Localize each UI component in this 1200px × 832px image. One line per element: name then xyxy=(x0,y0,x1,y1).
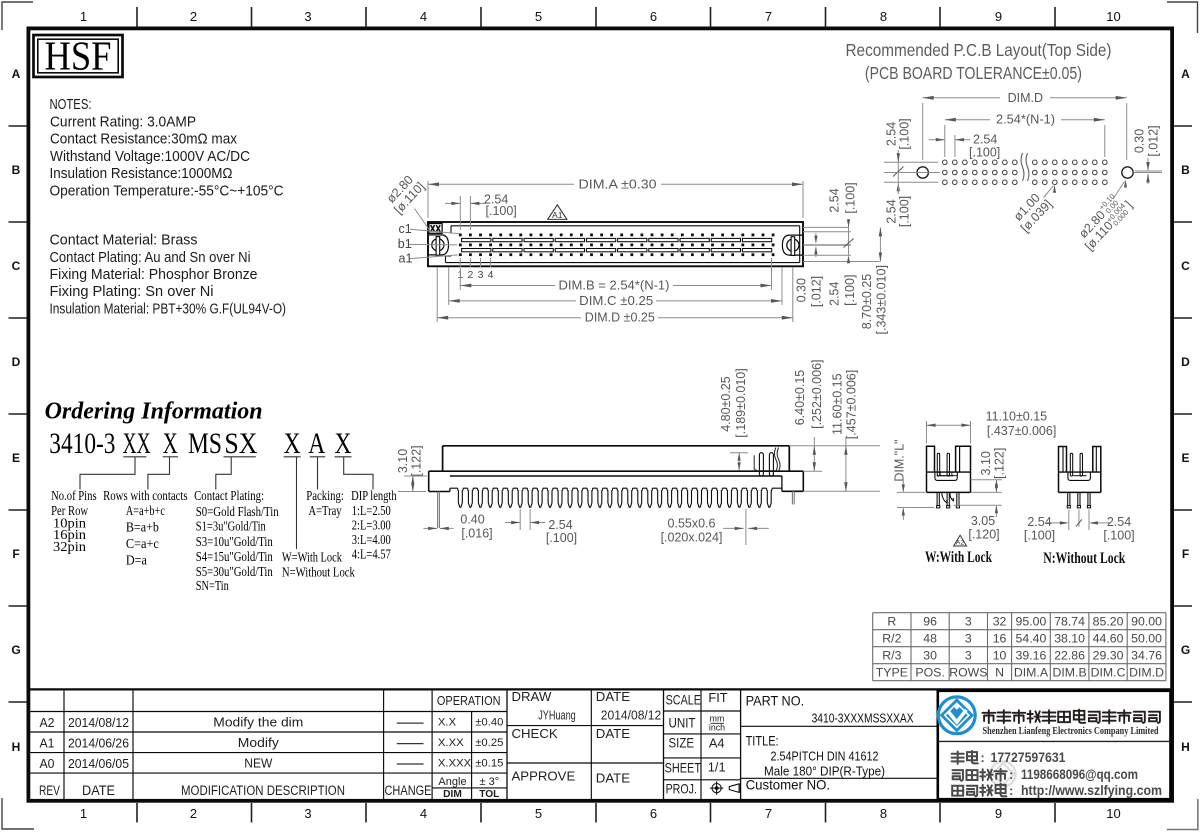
svg-text:54.40: 54.40 xyxy=(1016,631,1047,645)
svg-text:X: X xyxy=(284,427,301,460)
svg-text:SHEET: SHEET xyxy=(665,761,702,776)
svg-text:29.30: 29.30 xyxy=(1093,648,1124,662)
svg-text:7: 7 xyxy=(765,9,772,24)
svg-text:8: 8 xyxy=(880,806,887,821)
svg-text:PART NO.: PART NO. xyxy=(746,694,805,709)
svg-text:Customer NO.: Customer NO. xyxy=(746,778,831,793)
svg-text:H: H xyxy=(1181,740,1190,754)
svg-text:2014/06/05: 2014/06/05 xyxy=(68,756,129,771)
svg-text:[.252±0.006]: [.252±0.006] xyxy=(810,359,824,428)
svg-text:90.00: 90.00 xyxy=(1131,614,1162,628)
svg-text:6.40±0.15: 6.40±0.15 xyxy=(793,370,807,426)
svg-text:R/3: R/3 xyxy=(882,648,901,662)
svg-text:Shenzhen Lianfeng Electronics: Shenzhen Lianfeng Electronics Company Li… xyxy=(983,726,1159,737)
svg-text:X: X xyxy=(163,427,178,460)
svg-text:E: E xyxy=(12,451,20,465)
svg-text:[.122]: [.122] xyxy=(992,448,1006,479)
svg-text:B=a+b: B=a+b xyxy=(126,520,159,535)
svg-text:2014/06/26: 2014/06/26 xyxy=(68,736,129,751)
svg-text:0.40: 0.40 xyxy=(460,512,484,526)
svg-text:B: B xyxy=(1181,163,1190,177)
svg-text:2.54: 2.54 xyxy=(828,281,842,305)
svg-text:Insulation Resistance:1000MΩ: Insulation Resistance:1000MΩ xyxy=(50,165,233,182)
svg-text:4: 4 xyxy=(420,9,427,24)
svg-text:[.437±0.006]: [.437±0.006] xyxy=(987,424,1056,438)
svg-text:X.X: X.X xyxy=(438,716,457,728)
svg-text:2014/08/12: 2014/08/12 xyxy=(68,715,129,730)
svg-text:Modify the dim: Modify the dim xyxy=(213,715,303,730)
svg-text:Modify: Modify xyxy=(238,735,280,750)
svg-text:32pin: 32pin xyxy=(53,539,86,554)
svg-text:±0.15: ±0.15 xyxy=(475,757,503,769)
svg-text:TYPE: TYPE xyxy=(876,665,908,679)
svg-text:G: G xyxy=(1181,643,1190,657)
svg-text:C: C xyxy=(1181,259,1190,273)
svg-text:2: 2 xyxy=(190,806,197,821)
svg-text:4: 4 xyxy=(420,806,427,821)
svg-text:DIM.D ±0.25: DIM.D ±0.25 xyxy=(585,311,655,325)
svg-text:10: 10 xyxy=(993,648,1007,662)
svg-text:Packing:: Packing: xyxy=(306,488,344,503)
svg-text:5: 5 xyxy=(535,806,542,821)
svg-text:Rows with contacts: Rows with contacts xyxy=(103,488,188,503)
svg-text:DIM."L": DIM."L" xyxy=(892,439,906,481)
svg-text:DIM.C ±0.25: DIM.C ±0.25 xyxy=(579,294,653,308)
svg-text:A1: A1 xyxy=(552,210,563,220)
svg-text:[.100]: [.100] xyxy=(486,204,517,218)
svg-text:2:L=3.00: 2:L=3.00 xyxy=(352,517,391,532)
svg-text:DIM.D: DIM.D xyxy=(1129,665,1164,679)
svg-text:[.100]: [.100] xyxy=(843,275,857,306)
svg-text:R/2: R/2 xyxy=(882,631,901,645)
svg-text:[.100]: [.100] xyxy=(969,146,1000,160)
svg-text:FIT: FIT xyxy=(708,690,727,705)
svg-text:SIZE: SIZE xyxy=(669,736,695,751)
svg-text:78.74: 78.74 xyxy=(1054,614,1085,628)
svg-text:Contact Plating:: Contact Plating: xyxy=(194,488,264,503)
svg-text:PROJ.: PROJ. xyxy=(666,781,697,796)
svg-text:A1: A1 xyxy=(40,736,55,751)
svg-text:D=a: D=a xyxy=(126,553,147,568)
svg-text:3: 3 xyxy=(965,648,972,662)
svg-text:c1: c1 xyxy=(399,222,412,236)
svg-text:UNIT: UNIT xyxy=(669,716,696,731)
svg-text:3410-3XXXMSSXXAX: 3410-3XXXMSSXXAX xyxy=(812,711,914,726)
svg-text:3.10: 3.10 xyxy=(396,449,410,473)
svg-text:8: 8 xyxy=(880,9,887,24)
svg-text:inch: inch xyxy=(709,723,725,733)
svg-text:±0.40: ±0.40 xyxy=(475,716,503,728)
svg-text:A: A xyxy=(308,427,325,460)
svg-text:[.016]: [.016] xyxy=(461,526,492,540)
svg-text:DATE: DATE xyxy=(596,771,630,786)
svg-text:CHANGE: CHANGE xyxy=(385,783,432,798)
svg-text:TOL: TOL xyxy=(479,789,499,800)
svg-text:0.30: 0.30 xyxy=(794,278,808,302)
svg-text:Operation Temperature:-55°C~+: Operation Temperature:-55°C~+105°C xyxy=(50,183,284,200)
svg-text:Insulation Material: PBT+30%: Insulation Material: PBT+30% G.F(UL94V-O… xyxy=(50,300,287,317)
svg-text:32: 32 xyxy=(993,614,1007,628)
svg-text:39.16: 39.16 xyxy=(1016,648,1047,662)
svg-text:S0=Gold Flash/Tin: S0=Gold Flash/Tin xyxy=(196,504,279,519)
svg-text:C: C xyxy=(12,259,21,273)
svg-text:9: 9 xyxy=(995,806,1002,821)
svg-text:[.120]: [.120] xyxy=(968,528,999,542)
svg-text:Fixing Plating: Sn over Ni: Fixing Plating: Sn over Ni xyxy=(50,283,214,300)
svg-text:2: 2 xyxy=(467,269,473,281)
svg-text:0.55x0.6: 0.55x0.6 xyxy=(668,516,716,530)
svg-text:Contact Resistance:30mΩ max: Contact Resistance:30mΩ max xyxy=(50,130,237,147)
svg-text:DIM.B = 2.54*(N-1): DIM.B = 2.54*(N-1) xyxy=(559,278,670,292)
svg-text:SX: SX xyxy=(224,427,257,460)
svg-text:F: F xyxy=(1182,547,1189,561)
svg-text:[.100]: [.100] xyxy=(546,531,577,545)
svg-text:[.100]: [.100] xyxy=(1024,528,1055,542)
svg-text:[.100]: [.100] xyxy=(1103,528,1134,542)
svg-text:A2: A2 xyxy=(956,540,965,547)
svg-text:W:With Lock: W:With Lock xyxy=(925,549,992,566)
svg-text:3.10: 3.10 xyxy=(979,451,993,475)
svg-text:10: 10 xyxy=(1106,9,1120,24)
svg-text:3: 3 xyxy=(478,269,484,281)
svg-text:2.54: 2.54 xyxy=(1027,515,1051,529)
svg-text:9: 9 xyxy=(995,9,1002,24)
svg-text:1:L=2.50: 1:L=2.50 xyxy=(352,503,391,518)
svg-text:S3=10u"Gold/Tin: S3=10u"Gold/Tin xyxy=(196,534,273,549)
svg-text:MS: MS xyxy=(188,427,222,460)
svg-text:[.100]: [.100] xyxy=(898,118,912,149)
svg-text:48: 48 xyxy=(923,631,937,645)
svg-text:DIM: DIM xyxy=(443,789,462,800)
svg-text:22.86: 22.86 xyxy=(1054,648,1085,662)
svg-text:Ordering Information: Ordering Information xyxy=(45,399,263,425)
svg-text:44.60: 44.60 xyxy=(1093,631,1124,645)
svg-text:G: G xyxy=(11,643,20,657)
svg-text:[.189±0.010]: [.189±0.010] xyxy=(734,368,748,437)
svg-text:50.00: 50.00 xyxy=(1131,631,1162,645)
svg-text:2.54: 2.54 xyxy=(973,133,997,147)
svg-text:2.54: 2.54 xyxy=(1107,515,1131,529)
svg-text:4.80±0.25: 4.80±0.25 xyxy=(719,376,733,432)
svg-text:REV: REV xyxy=(39,783,60,798)
svg-text:SCALE: SCALE xyxy=(666,693,701,708)
svg-text:A0: A0 xyxy=(40,756,55,771)
svg-text:[.012]: [.012] xyxy=(1147,125,1161,156)
svg-text:85.20: 85.20 xyxy=(1093,614,1124,628)
svg-text:3410-3: 3410-3 xyxy=(49,427,115,460)
svg-text:ROWS: ROWS xyxy=(949,665,987,679)
svg-text:JYHuang: JYHuang xyxy=(538,707,576,722)
svg-text:A=a+b+c: A=a+b+c xyxy=(126,503,165,518)
svg-text:DIM.C: DIM.C xyxy=(1091,665,1126,679)
svg-text:No.of Pins: No.of Pins xyxy=(51,488,97,503)
svg-text:A: A xyxy=(1181,67,1190,81)
svg-text:N:Without Lock: N:Without Lock xyxy=(1043,550,1125,567)
svg-text:7: 7 xyxy=(765,806,772,821)
svg-text:Angle: Angle xyxy=(438,776,466,788)
svg-text:3: 3 xyxy=(304,9,311,24)
svg-text:HSF: HSF xyxy=(45,33,112,79)
svg-text:X.XXX: X.XXX xyxy=(438,757,472,769)
svg-text:16: 16 xyxy=(993,631,1007,645)
svg-text:B: B xyxy=(12,163,21,177)
svg-text:5: 5 xyxy=(535,9,542,24)
svg-text:D: D xyxy=(12,355,21,369)
svg-text:NEW: NEW xyxy=(244,756,273,771)
svg-text:[.100]: [.100] xyxy=(843,182,857,213)
svg-text:2.54: 2.54 xyxy=(827,188,841,212)
svg-text::: : xyxy=(1009,783,1013,798)
svg-text:11.10±0.15: 11.10±0.15 xyxy=(986,409,1048,423)
svg-text:R: R xyxy=(887,614,896,628)
svg-text:2.54: 2.54 xyxy=(885,199,899,223)
svg-text:4:L=4.57: 4:L=4.57 xyxy=(352,546,391,561)
svg-text:3.05: 3.05 xyxy=(971,514,995,528)
svg-text:Male 180° DIP(R-Type): Male 180° DIP(R-Type) xyxy=(764,764,885,779)
svg-text:APPROVE: APPROVE xyxy=(512,768,576,783)
svg-text:2.54: 2.54 xyxy=(885,122,899,146)
svg-text:[.100]: [.100] xyxy=(898,196,912,227)
svg-text:[.020x.024]: [.020x.024] xyxy=(661,530,723,544)
svg-text:S4=15u"Gold/Tin: S4=15u"Gold/Tin xyxy=(196,549,273,564)
svg-text:TITLE:: TITLE: xyxy=(746,734,779,749)
svg-text:C=a+c: C=a+c xyxy=(126,536,159,551)
svg-text:DATE: DATE xyxy=(596,689,630,704)
svg-text::: : xyxy=(1009,767,1013,782)
svg-text:3:L=4.00: 3:L=4.00 xyxy=(352,532,391,547)
svg-text:N: N xyxy=(995,665,1004,679)
svg-text:± 3°: ± 3° xyxy=(479,776,499,788)
svg-text:96: 96 xyxy=(923,614,937,628)
svg-text:A4: A4 xyxy=(709,736,725,751)
svg-text:Fixing Material: Phosphor B: Fixing Material: Phosphor Bronze xyxy=(50,266,258,283)
svg-text:NOTES:: NOTES: xyxy=(50,96,92,113)
svg-text:DIM.B: DIM.B xyxy=(1053,665,1087,679)
svg-text:1198668096@qq.com: 1198668096@qq.com xyxy=(1021,767,1138,783)
svg-text:2.54*(N-1): 2.54*(N-1) xyxy=(996,113,1055,127)
svg-text:CHECK: CHECK xyxy=(512,726,558,741)
svg-text:30: 30 xyxy=(923,648,937,662)
svg-text:1/1: 1/1 xyxy=(708,759,726,774)
svg-text:3: 3 xyxy=(965,631,972,645)
svg-text:http://www.szlfying.com: http://www.szlfying.com xyxy=(1021,783,1162,799)
svg-text:DIM.A: DIM.A xyxy=(1014,665,1049,679)
svg-text:34.76: 34.76 xyxy=(1131,648,1162,662)
svg-text:0.30: 0.30 xyxy=(1133,129,1147,153)
svg-text:Contact Material: Brass: Contact Material: Brass xyxy=(50,231,198,248)
svg-text:4: 4 xyxy=(488,269,494,281)
svg-text:DIM.D: DIM.D xyxy=(1008,91,1043,105)
svg-text:[.343±0.010]: [.343±0.010] xyxy=(874,265,888,334)
svg-text:S1=3u"Gold/Tin: S1=3u"Gold/Tin xyxy=(196,519,266,534)
svg-text:3: 3 xyxy=(965,614,972,628)
svg-text:DATE: DATE xyxy=(596,726,630,741)
svg-text:H: H xyxy=(12,740,21,754)
svg-text:N=Without Lock: N=Without Lock xyxy=(282,565,355,580)
svg-text:8.70±0.25: 8.70±0.25 xyxy=(860,274,874,330)
svg-text:E: E xyxy=(1181,451,1189,465)
svg-text:17727597631: 17727597631 xyxy=(991,750,1066,766)
svg-text:10: 10 xyxy=(1106,806,1120,821)
svg-text:W=With Lock: W=With Lock xyxy=(282,550,342,565)
svg-text:[.457±0.006]: [.457±0.006] xyxy=(844,370,858,439)
svg-text:95.00: 95.00 xyxy=(1016,614,1047,628)
svg-text:11.60±0.15: 11.60±0.15 xyxy=(830,373,844,435)
svg-text:F: F xyxy=(12,547,19,561)
svg-text:6: 6 xyxy=(650,9,657,24)
svg-text:POS.: POS. xyxy=(915,665,944,679)
svg-text:DIM.A ±0.30: DIM.A ±0.30 xyxy=(579,177,657,191)
svg-text:Withstand Voltage:1000V AC/D: Withstand Voltage:1000V AC/DC xyxy=(50,148,250,165)
svg-text:(PCB BOARD TOLERANCE±0.05): (PCB BOARD TOLERANCE±0.05) xyxy=(865,63,1082,83)
svg-text:±0.25: ±0.25 xyxy=(475,737,503,749)
svg-text:1: 1 xyxy=(80,9,87,24)
svg-text:MODIFICATION DESCRIPTION: MODIFICATION DESCRIPTION xyxy=(181,783,345,798)
svg-text:DIP length: DIP length xyxy=(351,488,397,503)
svg-text:2.54PITCH DIN 41612: 2.54PITCH DIN 41612 xyxy=(771,749,879,764)
svg-text:DRAW: DRAW xyxy=(512,689,552,704)
svg-text:D: D xyxy=(1181,355,1190,369)
svg-text:X.XX: X.XX xyxy=(438,737,464,749)
svg-text:[.122]: [.122] xyxy=(409,445,423,476)
svg-text:X: X xyxy=(335,427,352,460)
svg-text:[.012]: [.012] xyxy=(809,276,823,307)
svg-text:Recommended P.C.B Layout(Top S: Recommended P.C.B Layout(Top Side) xyxy=(846,40,1112,60)
svg-text:Current Rating: 3.0AMP: Current Rating: 3.0AMP xyxy=(50,113,196,130)
svg-text:OPERATION: OPERATION xyxy=(437,693,501,708)
svg-text:SN=Tin: SN=Tin xyxy=(196,578,229,593)
svg-text:1: 1 xyxy=(80,806,87,821)
svg-text:A2: A2 xyxy=(40,715,55,730)
svg-text::: : xyxy=(980,750,984,765)
svg-text:A=Tray: A=Tray xyxy=(309,503,342,518)
svg-text:XX: XX xyxy=(123,427,151,460)
svg-text:3: 3 xyxy=(304,806,311,821)
svg-text:38.10: 38.10 xyxy=(1054,631,1085,645)
svg-text:A: A xyxy=(12,67,21,81)
svg-text:DATE: DATE xyxy=(82,783,115,798)
svg-text:S5=30u"Gold/Tin: S5=30u"Gold/Tin xyxy=(196,564,273,579)
svg-text:2014/08/12: 2014/08/12 xyxy=(601,707,662,722)
svg-text:2: 2 xyxy=(190,9,197,24)
svg-text:Contact Plating: Au and Sn: Contact Plating: Au and Sn over Ni xyxy=(50,249,251,266)
svg-text:6: 6 xyxy=(650,806,657,821)
